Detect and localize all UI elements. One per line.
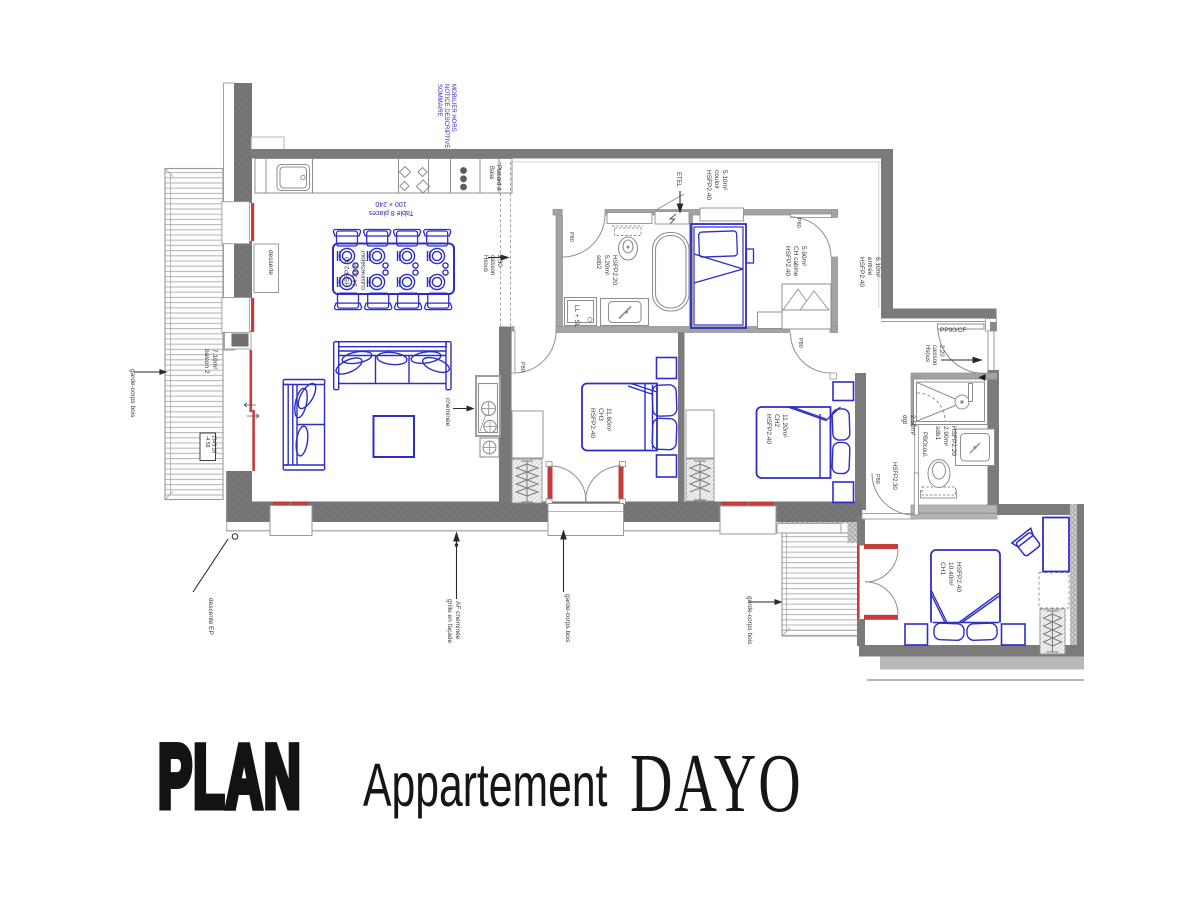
svg-text:HSFP2.20: HSFP2.20 bbox=[950, 426, 957, 456]
svg-text:HSFP2.20: HSFP2.20 bbox=[611, 255, 618, 285]
svg-text:P80: P80 bbox=[568, 232, 574, 242]
svg-text:garde-corps bois: garde-corps bois bbox=[746, 596, 753, 645]
svg-text:P80: P80 bbox=[519, 362, 525, 372]
svg-text:P80: P80 bbox=[874, 474, 880, 484]
svg-text:Hsous: Hsous bbox=[924, 345, 930, 362]
svg-text:2.50m²: 2.50m² bbox=[909, 415, 916, 436]
svg-text:garde-corps bois: garde-corps bois bbox=[129, 369, 136, 418]
svg-text:5.90m²: 5.90m² bbox=[800, 246, 807, 267]
svg-text:CH1: CH1 bbox=[939, 562, 946, 575]
svg-text:desserte: desserte bbox=[267, 250, 274, 275]
svg-text:AF cheminée: AF cheminée bbox=[454, 601, 461, 640]
svg-text:P80: P80 bbox=[797, 338, 803, 348]
svg-text:2.90m²: 2.90m² bbox=[942, 426, 949, 447]
svg-text:7.10m²: 7.10m² bbox=[211, 349, 218, 370]
svg-text:SOMMAIRE: SOMMAIRE bbox=[436, 84, 442, 117]
svg-text:HSFP2.40: HSFP2.40 bbox=[955, 562, 962, 592]
svg-text:HSFP2.40: HSFP2.40 bbox=[705, 170, 712, 200]
svg-text:PP90/CF: PP90/CF bbox=[940, 327, 966, 334]
svg-text:HSFP2.40: HSFP2.40 bbox=[344, 257, 351, 287]
svg-text:sdb1: sdb1 bbox=[934, 426, 941, 440]
svg-text:2.20: 2.20 bbox=[938, 345, 944, 357]
svg-text:HSFP2.40: HSFP2.40 bbox=[765, 414, 772, 444]
svg-text:PLAN: PLAN bbox=[158, 727, 302, 826]
svg-text:CH2: CH2 bbox=[773, 414, 780, 427]
svg-text:descente EP: descente EP bbox=[207, 598, 214, 635]
svg-text:couloir: couloir bbox=[713, 170, 720, 190]
svg-text:6.10m²: 6.10m² bbox=[874, 257, 881, 278]
svg-text:HSFP2.40: HSFP2.40 bbox=[858, 257, 865, 287]
svg-text:-4.59: -4.59 bbox=[204, 436, 210, 448]
svg-text:10.40m²: 10.40m² bbox=[947, 562, 954, 587]
svg-text:NOTICE DESCRIPTIVE: NOTICE DESCRIPTIVE bbox=[443, 84, 449, 148]
svg-text:garde-corps bois: garde-corps bois bbox=[564, 594, 571, 643]
svg-text:Balai: Balai bbox=[488, 166, 494, 179]
svg-text:Table 8 places: Table 8 places bbox=[368, 209, 413, 216]
svg-text:cheminée: cheminée bbox=[444, 398, 451, 427]
svg-text:caisson: caisson bbox=[931, 345, 937, 365]
svg-text:caisson: caisson bbox=[489, 255, 495, 275]
svg-text:balcon 2: balcon 2 bbox=[203, 349, 210, 374]
svg-text:cuisine/séjour: cuisine/séjour bbox=[360, 249, 367, 290]
svg-text:11.20m²: 11.20m² bbox=[781, 414, 788, 438]
svg-text:Placard à: Placard à bbox=[495, 165, 501, 191]
svg-text:CH3: CH3 bbox=[597, 408, 604, 421]
svg-text:HSFP2.40: HSFP2.40 bbox=[784, 246, 791, 276]
svg-text:Hsous: Hsous bbox=[482, 255, 488, 272]
svg-text:HSFP2.40: HSFP2.40 bbox=[589, 408, 596, 438]
svg-text:dgt: dgt bbox=[901, 415, 908, 424]
svg-text:entrée: entrée bbox=[866, 257, 873, 276]
svg-text:34.70m²: 34.70m² bbox=[352, 262, 359, 287]
svg-text:Appartement: Appartement bbox=[363, 752, 608, 820]
svg-text:PBOcoul.: PBOcoul. bbox=[921, 432, 927, 458]
svg-text:ETEL: ETEL bbox=[675, 172, 681, 188]
svg-text:sdb2: sdb2 bbox=[595, 255, 602, 269]
svg-text:5.20m²: 5.20m² bbox=[603, 255, 610, 276]
svg-text:1343.18: 1343.18 bbox=[211, 435, 217, 453]
svg-text:11.60m²: 11.60m² bbox=[605, 408, 612, 432]
svg-text:DAYO: DAYO bbox=[630, 736, 803, 830]
svg-text:5.10m²: 5.10m² bbox=[721, 170, 728, 191]
svg-text:100 × 240: 100 × 240 bbox=[375, 200, 406, 207]
svg-text:CH cabine: CH cabine bbox=[792, 246, 799, 277]
svg-text:LL + SL: LL + SL bbox=[573, 305, 580, 328]
svg-text:2.30: 2.30 bbox=[496, 255, 502, 267]
svg-text:MOBILIER HORS: MOBILIER HORS bbox=[450, 84, 456, 132]
svg-text:grille en façade: grille en façade bbox=[446, 599, 453, 643]
svg-text:P80: P80 bbox=[795, 218, 801, 228]
svg-text:HSFP2.30: HSFP2.30 bbox=[891, 462, 897, 490]
